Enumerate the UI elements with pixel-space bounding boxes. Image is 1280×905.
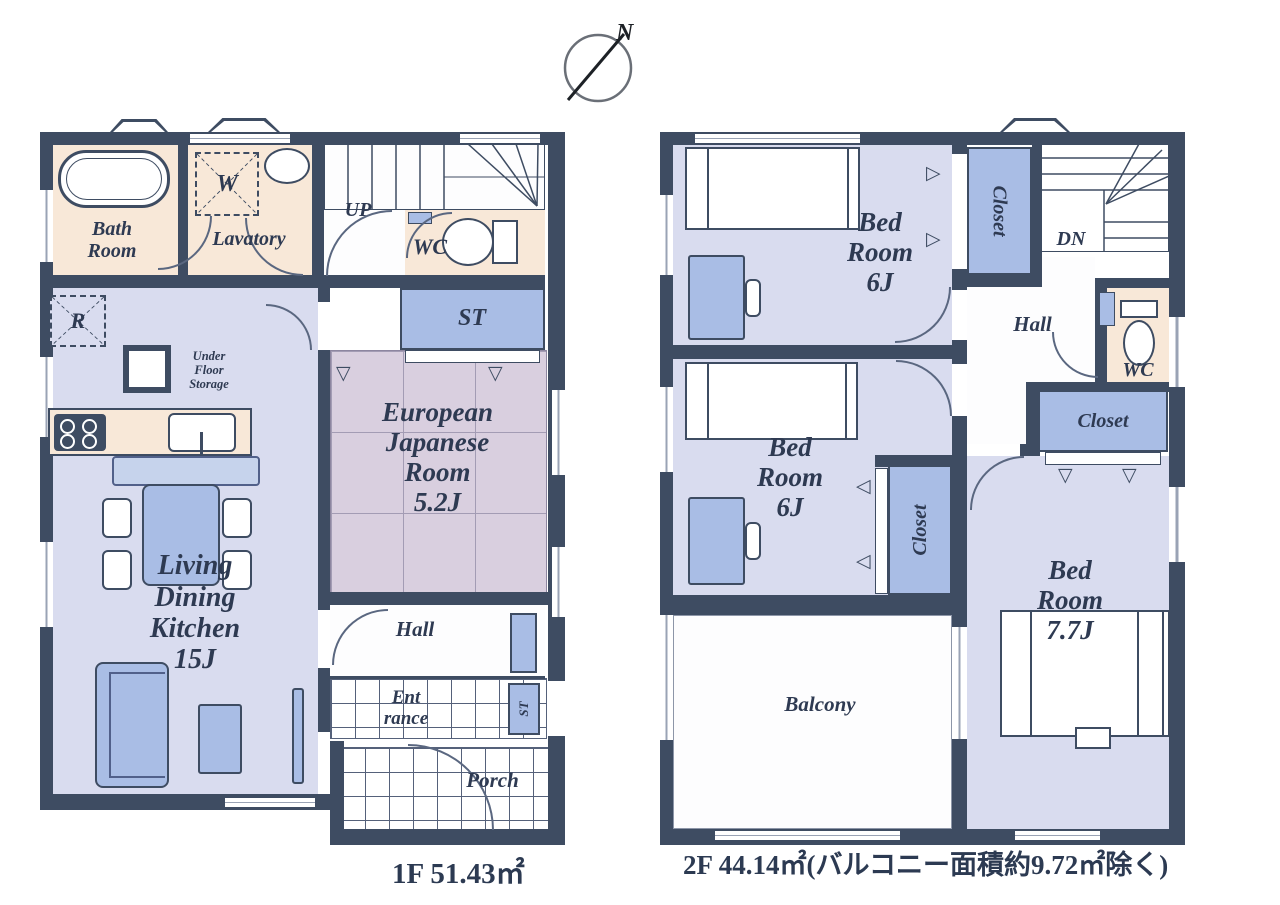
door-opening bbox=[318, 302, 330, 350]
tv bbox=[292, 688, 304, 784]
ldk-label: Living Dining Kitchen 15J bbox=[95, 528, 295, 698]
bathtub bbox=[58, 150, 170, 208]
window bbox=[1015, 831, 1100, 840]
wall bbox=[312, 145, 324, 275]
wall bbox=[318, 592, 557, 605]
hanger-icon: ▷ bbox=[926, 164, 941, 183]
under-floor-storage-box bbox=[123, 345, 171, 393]
wc-shelf bbox=[1099, 292, 1115, 326]
washer-label: W bbox=[216, 171, 237, 198]
closet-right-label: Closet bbox=[1038, 390, 1168, 452]
japanese-room-label: European Japanese Room 5.2J bbox=[335, 372, 540, 542]
refrigerator: R bbox=[50, 295, 106, 347]
window bbox=[1169, 317, 1185, 387]
floor2-area-label: 2F 44.14㎡(バルコニー面積約9.72㎡除く) bbox=[683, 843, 1168, 882]
window bbox=[660, 387, 673, 472]
balcony-floor bbox=[673, 615, 952, 829]
hanger-icon: ◁ bbox=[856, 552, 871, 571]
window bbox=[40, 190, 53, 262]
bath-label: Bath Room bbox=[60, 214, 164, 266]
kitchen-island bbox=[112, 456, 260, 486]
washing-machine: W bbox=[195, 152, 259, 216]
wall bbox=[53, 275, 545, 288]
window bbox=[660, 195, 673, 275]
lavatory-label: Lavatory bbox=[186, 224, 312, 254]
porch-label: Porch bbox=[435, 766, 550, 796]
wall bbox=[330, 676, 545, 679]
wall bbox=[330, 829, 565, 845]
faucet-icon bbox=[200, 432, 203, 458]
bedroom3-label: Bed Room 7.7J bbox=[980, 534, 1160, 666]
window bbox=[225, 798, 315, 807]
floorplan-canvas: N bbox=[0, 0, 1280, 905]
window bbox=[715, 831, 900, 840]
window bbox=[40, 542, 53, 627]
entrance-label: Ent rance bbox=[360, 680, 452, 736]
wall bbox=[1020, 444, 1040, 456]
hall-cabinet bbox=[510, 613, 537, 673]
floor2-plan: Closet ▷ ▷ Closet ▽ ▽ Closet ◁ ◁ bbox=[660, 132, 1185, 845]
wall bbox=[673, 345, 967, 359]
window bbox=[1169, 487, 1185, 562]
balcony-label: Balcony bbox=[760, 690, 880, 720]
vent-icon bbox=[208, 118, 280, 132]
toilet-tank bbox=[1120, 300, 1158, 318]
front-door-opening bbox=[548, 681, 565, 736]
wall bbox=[673, 595, 967, 615]
shoe-storage-label: ST bbox=[498, 693, 550, 725]
hall-label: Hall bbox=[985, 310, 1080, 340]
lavatory-sink bbox=[264, 148, 310, 184]
window bbox=[190, 134, 290, 143]
side-table bbox=[198, 704, 242, 774]
toilet-tank bbox=[492, 220, 518, 264]
hall-label: Hall bbox=[370, 614, 460, 646]
under-floor-storage-label: Under Floor Storage bbox=[173, 342, 245, 398]
window bbox=[460, 134, 540, 143]
desk-chair bbox=[745, 279, 761, 317]
hanger-icon: ▽ bbox=[1058, 466, 1073, 485]
balcony-rail bbox=[660, 615, 673, 740]
compass-icon: N bbox=[558, 18, 644, 110]
closet-shelf bbox=[875, 468, 888, 594]
storage-shelf bbox=[405, 350, 540, 363]
wc-label: WC bbox=[402, 230, 458, 264]
wall bbox=[952, 275, 1042, 287]
dn-label: DN bbox=[1045, 224, 1097, 254]
floor1-plan: W R ▽ bbox=[40, 132, 565, 845]
balcony-door bbox=[952, 627, 967, 739]
door-opening bbox=[952, 364, 967, 416]
bedroom1-label: Bed Room 6J bbox=[800, 187, 960, 317]
fridge-label: R bbox=[71, 309, 86, 334]
window bbox=[552, 390, 565, 475]
floor1-area-label: 1F 51.43㎡ bbox=[392, 850, 525, 892]
bedroom2-label: Bed Room 6J bbox=[710, 412, 870, 542]
st-label: ST bbox=[412, 298, 532, 338]
bed-foot-table bbox=[1075, 727, 1111, 749]
compass-north-label: N bbox=[615, 20, 635, 46]
window bbox=[695, 134, 860, 143]
wall bbox=[548, 132, 565, 845]
vent-icon bbox=[1000, 118, 1070, 132]
vent-icon bbox=[110, 119, 168, 132]
window bbox=[552, 547, 565, 617]
desk bbox=[688, 255, 745, 340]
hanger-icon: ▽ bbox=[1122, 466, 1137, 485]
up-label: UP bbox=[334, 196, 382, 224]
stove-icon bbox=[54, 414, 106, 451]
door-opening bbox=[318, 610, 330, 668]
wc-label: WC bbox=[1107, 356, 1169, 384]
